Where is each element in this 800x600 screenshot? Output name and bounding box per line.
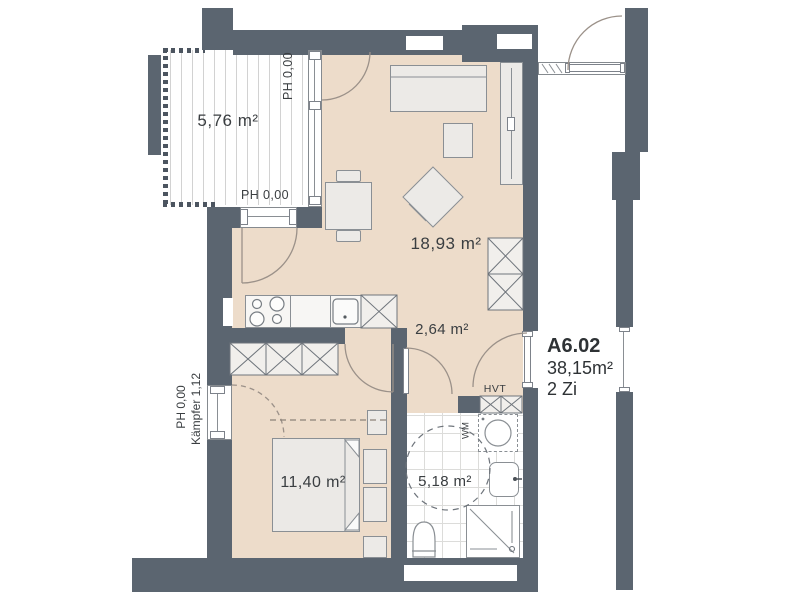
kitchen-counter (245, 295, 397, 328)
neighbour-window-glazing (623, 329, 624, 390)
washing-machine-symbol (478, 414, 518, 452)
neighbour-window (616, 327, 633, 392)
wall-segment (523, 388, 538, 560)
balcony-railing-top (163, 48, 205, 53)
hall-area-label: 2,64 m² (392, 321, 492, 338)
entrance-door-leaf (524, 332, 531, 387)
wall-segment (207, 440, 232, 558)
dresser-symbol (363, 536, 387, 558)
wall-slot (223, 298, 233, 326)
bedroom-area-label: 11,40 m² (253, 474, 373, 492)
window-frame-mark (210, 431, 225, 439)
bedroom-window-ph-label: PH 0,00 (174, 377, 188, 437)
wall-segment (616, 392, 633, 590)
unit-rooms-label: 2 Zi (547, 379, 577, 400)
living-area-label: 18,93 m² (386, 234, 506, 254)
balcony-window (308, 50, 322, 207)
wall-segment (625, 8, 648, 152)
wall-segment (232, 328, 345, 344)
dresser-symbol (367, 410, 387, 435)
counter-divider (290, 296, 291, 327)
chair-symbol (336, 230, 361, 242)
hvt-label: HVT (475, 383, 515, 395)
unit-area-label: 38,15m² (547, 358, 613, 379)
door-frame-mark (522, 382, 533, 388)
wardrobe-handle (507, 117, 515, 131)
wall-segment (202, 8, 233, 50)
dining-table-symbol (325, 182, 372, 230)
shaft-opening (404, 565, 517, 581)
balcony-railing-left (163, 48, 168, 207)
wall-segment (207, 207, 240, 228)
staircase-door-leaf (568, 64, 622, 72)
wall-segment (523, 55, 538, 331)
door-frame-mark (522, 331, 533, 337)
chair-symbol (336, 170, 361, 182)
window-frame-mark (619, 387, 630, 392)
balcony-door-glazing (242, 216, 295, 217)
window-frame-mark (210, 386, 225, 394)
bathroom-area-label: 5,18 m² (395, 473, 495, 490)
unit-id-label: A6.02 (547, 335, 600, 358)
counter-divider (330, 296, 331, 327)
door-frame-mark (620, 63, 625, 73)
wall-segment (616, 200, 633, 327)
window-frame-mark (309, 101, 321, 110)
window-frame-mark (619, 327, 630, 332)
wall-niche (406, 36, 443, 50)
balcony-area-label: 5,76 m² (178, 111, 278, 131)
door-frame-mark (289, 209, 297, 225)
door-frame-mark (240, 209, 248, 225)
nightstand-symbol (363, 487, 387, 522)
wall-segment (612, 152, 640, 200)
wall-niche (497, 34, 532, 49)
bedroom-window-kaempfer-label: Kämpfer 1,12 (189, 369, 203, 449)
shower-symbol (466, 505, 520, 558)
balcony-ph-side-label: PH 0,00 (281, 46, 295, 106)
wall-segment (297, 207, 322, 228)
side-table-symbol (443, 123, 473, 158)
sofa-symbol (390, 65, 487, 112)
bathroom-door-leaf (403, 348, 409, 394)
door-frame-mark (565, 63, 570, 73)
window-frame-mark (309, 51, 321, 60)
floor-plan: 5,76 m² PH 0,00 PH 0,00 18,93 m² 2,64 m²… (0, 0, 800, 600)
balcony-divider-wall (148, 55, 161, 155)
wall-segment (458, 396, 482, 413)
balcony-ph-bottom-label: PH 0,00 (215, 188, 315, 202)
washing-machine-label: WM (461, 415, 472, 447)
balcony-window-glazing (314, 52, 315, 205)
